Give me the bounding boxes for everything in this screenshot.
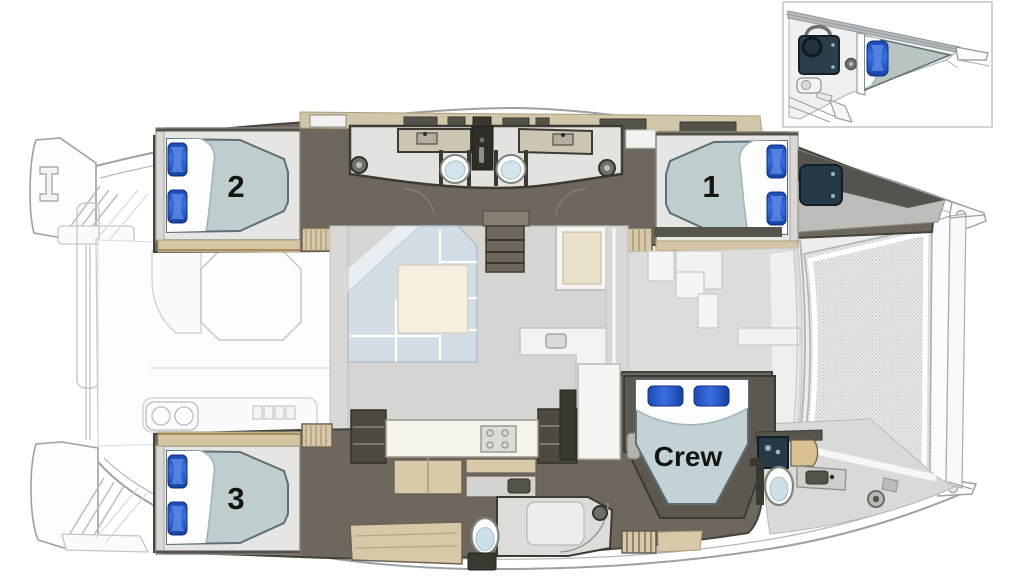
svg-text:Crew: Crew <box>654 441 723 472</box>
svg-text:3: 3 <box>227 481 244 516</box>
svg-text:2: 2 <box>227 169 244 204</box>
svg-text:1: 1 <box>702 169 719 204</box>
